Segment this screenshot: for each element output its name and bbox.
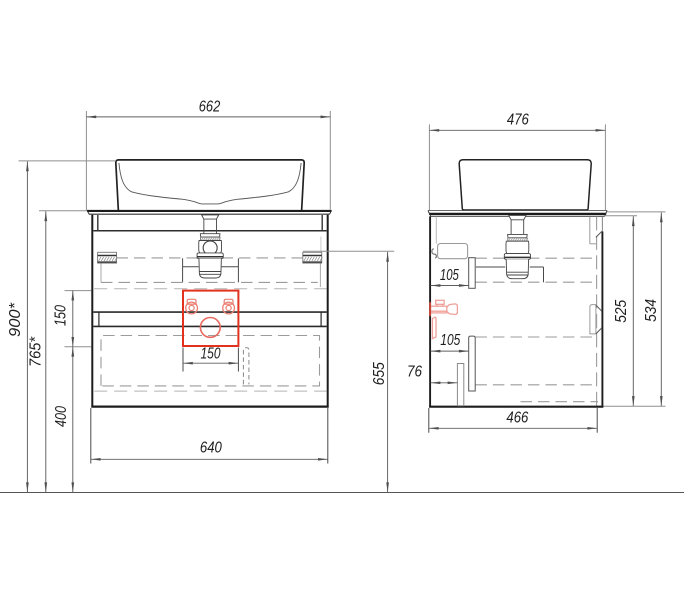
svg-text:400: 400 [53, 406, 70, 427]
svg-text:655: 655 [371, 362, 388, 385]
svg-text:105: 105 [440, 332, 460, 349]
svg-text:525: 525 [613, 300, 630, 323]
svg-text:150: 150 [201, 345, 221, 362]
svg-text:900*: 900* [7, 302, 24, 337]
svg-text:466: 466 [506, 409, 528, 426]
svg-text:105: 105 [440, 267, 459, 284]
svg-text:150: 150 [52, 305, 69, 326]
svg-text:534: 534 [643, 299, 660, 322]
svg-text:765*: 765* [27, 336, 44, 367]
svg-text:662: 662 [199, 98, 221, 115]
svg-text:476: 476 [507, 111, 529, 128]
svg-text:640: 640 [200, 439, 222, 456]
svg-text:76: 76 [407, 364, 422, 381]
